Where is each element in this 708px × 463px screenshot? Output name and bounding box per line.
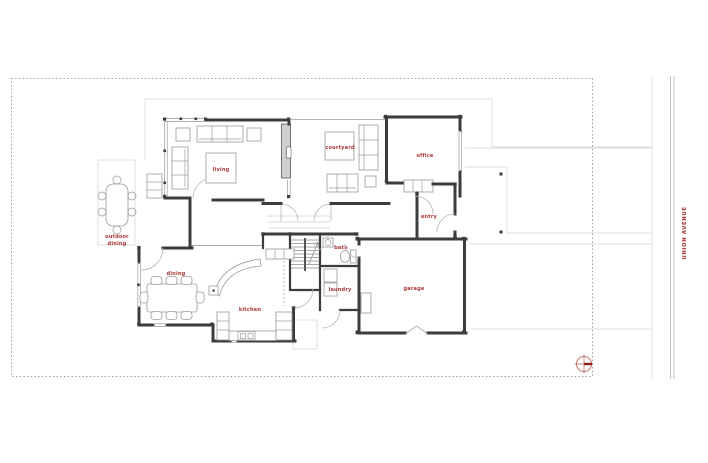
street-name-label: UNION AVENUE <box>682 206 688 259</box>
living-armchair-left <box>176 128 190 141</box>
outdoor-planter-bench <box>147 174 162 198</box>
kitchen-banquette <box>209 259 261 296</box>
office-closet <box>404 180 433 192</box>
floor-plan-page: UNION AVENUE <box>0 0 708 463</box>
north-arrow-icon <box>575 355 594 374</box>
kitchen-label: kitchen <box>239 307 262 313</box>
garage-room: garage <box>345 237 466 334</box>
kitchen-area: kitchen <box>209 249 295 342</box>
dining-label: dining <box>167 271 186 277</box>
courtyard-sofa <box>327 174 358 192</box>
outdoor-dining-table <box>98 176 136 234</box>
outdoor-dining-area: outdoor dining <box>98 174 162 247</box>
porch-post <box>500 173 503 176</box>
kitchen-counter-bottom <box>229 331 276 341</box>
outdoor-dining-label-line2: dining <box>108 241 127 247</box>
stair-treads <box>291 238 319 271</box>
office-label: office <box>416 153 433 159</box>
dining-table <box>140 277 204 320</box>
living-label: living <box>213 167 230 173</box>
living-sofa-west <box>172 147 188 189</box>
dining-room: dining <box>137 246 214 326</box>
courtyard-shelf <box>359 125 378 170</box>
laundry-room: laundry <box>322 269 359 328</box>
street-union-avenue: UNION AVENUE <box>652 76 688 379</box>
floor-plan-canvas: UNION AVENUE <box>0 0 708 463</box>
bath-sink <box>323 238 333 247</box>
property-line <box>12 79 593 377</box>
fireplace <box>282 124 292 178</box>
living-room: living <box>163 118 291 249</box>
courtyard-label: courtyard <box>325 145 355 151</box>
garage-utility <box>361 293 371 313</box>
kitchen-counter-left <box>217 312 229 340</box>
garage-label: garage <box>404 286 425 292</box>
laundry-label: laundry <box>329 287 352 293</box>
porch-post <box>500 231 503 234</box>
living-sofa <box>197 126 243 142</box>
courtyard-side-table <box>365 176 376 187</box>
outdoor-dining-label-line1: outdoor <box>105 234 129 240</box>
entry-label: entry <box>421 214 438 220</box>
living-armchair-right <box>247 128 261 141</box>
kitchen-counter-right <box>276 312 292 340</box>
toilet <box>340 250 356 263</box>
